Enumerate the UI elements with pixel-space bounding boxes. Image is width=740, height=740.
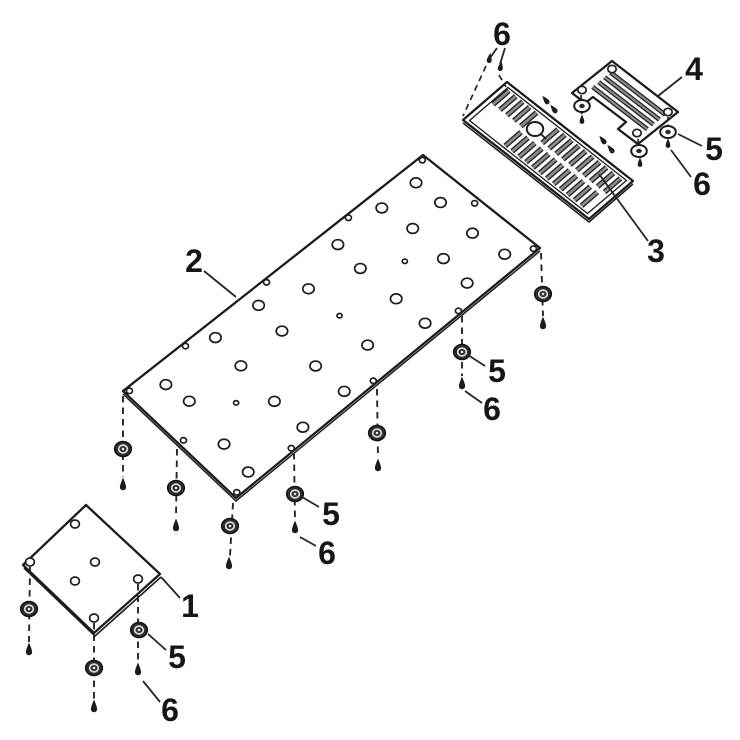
- plate-hole: [26, 558, 35, 566]
- plate-hole: [390, 294, 401, 304]
- callout-number: 6: [483, 391, 501, 427]
- plate-hole: [376, 203, 387, 213]
- callout-number: 4: [685, 51, 703, 87]
- callout-number: 6: [493, 16, 511, 52]
- diagram-canvas: 6 4 5 6 3 2 5 6: [0, 0, 740, 740]
- washer-grommet: [369, 425, 386, 440]
- plate-hole: [184, 396, 195, 406]
- plate-hole: [297, 422, 308, 432]
- plate-hole-small: [402, 259, 407, 263]
- washer-grommet: [115, 441, 132, 456]
- plate-hole: [499, 249, 510, 259]
- plate-hole: [332, 240, 343, 250]
- plate-edge-hole: [370, 378, 376, 383]
- plate-edge-hole: [264, 280, 270, 285]
- plate-hole: [90, 614, 99, 622]
- plate-hole: [438, 254, 449, 264]
- exploded-assembly-diagram: 6 4 5 6 3 2 5 6: [0, 0, 740, 740]
- plate-hole: [467, 228, 478, 238]
- plate-hole: [210, 333, 221, 343]
- callout-number: 1: [181, 588, 199, 624]
- plate-hole: [461, 278, 472, 288]
- plate-hole: [633, 129, 641, 136]
- plate-edge-hole: [530, 246, 536, 251]
- callout-number: 2: [185, 243, 203, 279]
- plate-edge-hole: [345, 215, 351, 220]
- callout-number: 6: [161, 692, 179, 728]
- plate-hole: [339, 386, 350, 396]
- plate-hole: [253, 300, 264, 310]
- plate-hole: [407, 224, 418, 234]
- washer-grommet: [222, 518, 239, 533]
- washer-grommet: [168, 480, 185, 495]
- plate-hole: [276, 326, 287, 336]
- plate-hole: [134, 575, 143, 583]
- plate-edge-hole: [234, 490, 240, 495]
- plate-edge-hole: [126, 388, 132, 393]
- plate-hole: [664, 108, 672, 115]
- plate-hole: [303, 284, 314, 294]
- callout-number: 5: [488, 353, 506, 389]
- plate-hole: [71, 577, 80, 585]
- plate-hole: [435, 198, 446, 208]
- plate-hole: [355, 264, 366, 274]
- washer-grommet: [131, 622, 148, 637]
- washer-grommet: [287, 486, 304, 501]
- plate-hole: [419, 318, 430, 328]
- plate-hole: [362, 340, 373, 350]
- plate-hole: [310, 361, 321, 371]
- plate-hole: [410, 178, 421, 188]
- plate-hole: [243, 467, 254, 477]
- plate-hole: [578, 86, 586, 93]
- callout-number: 6: [318, 535, 336, 571]
- callout-number: 5: [168, 639, 186, 675]
- plate-edge-hole: [288, 446, 294, 451]
- plate-edge-hole: [419, 157, 425, 162]
- plate-hole: [608, 65, 616, 72]
- callout-number: 3: [647, 233, 665, 269]
- washer-grommet: [454, 344, 471, 359]
- plate-hole-small: [234, 401, 239, 405]
- callout-number: 5: [705, 131, 723, 167]
- plate-hole: [160, 380, 171, 390]
- plate-edge-hole: [472, 201, 478, 206]
- washer-ring: [574, 100, 590, 112]
- plate-edge-hole: [180, 438, 186, 443]
- plate-hole: [91, 558, 100, 566]
- plate-edge-hole: [455, 308, 461, 313]
- plate-hole: [218, 439, 229, 449]
- plate-hole: [269, 396, 280, 406]
- washer-grommet: [535, 286, 552, 301]
- plate-hole: [71, 520, 80, 528]
- part-3-center-hole: [527, 122, 543, 136]
- washer-ring: [660, 126, 676, 138]
- washer-grommet: [21, 601, 38, 616]
- callout-number: 5: [322, 496, 340, 532]
- plate-edge-hole: [183, 343, 189, 348]
- plate-hole-small: [337, 314, 342, 318]
- washer-grommet: [86, 660, 103, 675]
- callout-number: 6: [693, 166, 711, 202]
- washer-ring: [631, 145, 647, 157]
- plate-hole: [235, 361, 246, 371]
